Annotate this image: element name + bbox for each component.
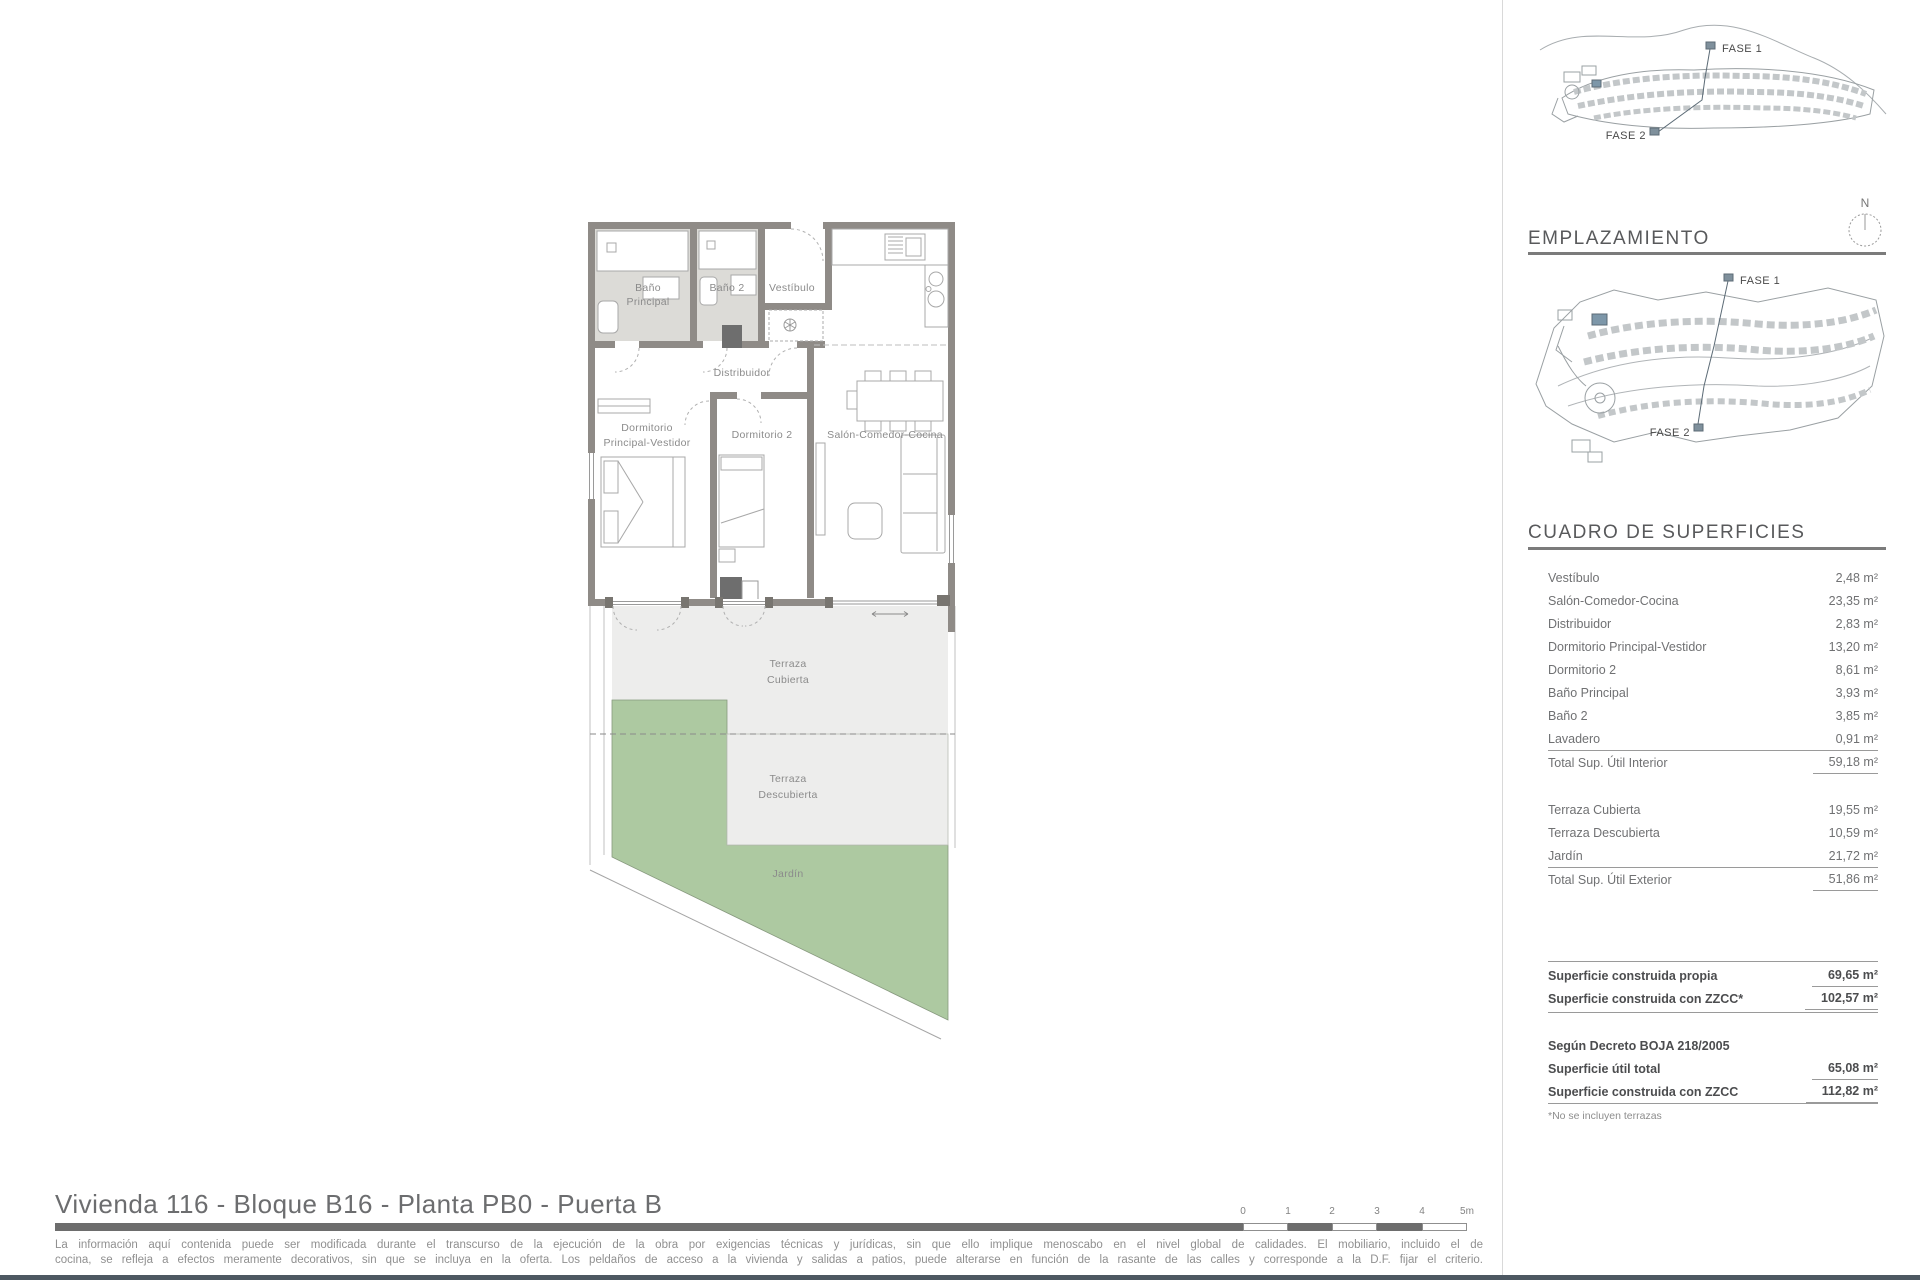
area-label-terraza-descubierta-1: Terraza xyxy=(769,773,806,785)
row-value: 51,86 m² xyxy=(1813,869,1878,891)
shaft-block xyxy=(722,325,742,348)
row-label: Superficie útil total xyxy=(1548,1059,1661,1080)
site-map-perspective: FASE 1 FASE 2 xyxy=(1534,6,1890,172)
row-label: Superficie construida con ZZCC xyxy=(1548,1082,1738,1103)
table-row: Lavadero0,91 m² xyxy=(1548,727,1878,750)
bottom-accent-band xyxy=(0,1275,1920,1280)
fase2-marker xyxy=(1694,424,1703,431)
table-row: Distribuidor2,83 m² xyxy=(1548,612,1878,635)
row-value: 10,59 m² xyxy=(1829,823,1878,844)
disclaimer: La información aquí contenida puede ser … xyxy=(55,1238,1483,1268)
emplazamiento-title: EMPLAZAMIENTO xyxy=(1528,228,1710,250)
site-map-plan: FASE 1 FASE 2 xyxy=(1528,266,1896,480)
row-value: 3,93 m² xyxy=(1836,683,1878,704)
disclaimer-line2: cocina, se refleja a efectos meramente d… xyxy=(55,1253,1483,1268)
fase1-label: FASE 1 xyxy=(1740,275,1780,287)
table-row: Terraza Cubierta19,55 m² xyxy=(1548,798,1878,821)
surfaces-rule xyxy=(1528,547,1886,550)
table-row: Jardín21,72 m² xyxy=(1548,844,1878,867)
table-total-row: Total Sup. Útil Interior59,18 m² xyxy=(1548,750,1878,774)
area-label-terraza-cubierta-2: Cubierta xyxy=(767,674,809,686)
room-label-bano-principal-2: Principal xyxy=(627,296,670,308)
row-value: 21,72 m² xyxy=(1829,846,1878,867)
room-label-dorm-principal-2: Principal-Vestidor xyxy=(603,437,690,449)
table-row: Vestíbulo2,48 m² xyxy=(1548,566,1878,589)
table-row: Salón-Comedor-Cocina23,35 m² xyxy=(1548,589,1878,612)
scale-segment xyxy=(1422,1223,1467,1231)
row-label: Vestíbulo xyxy=(1548,568,1599,589)
surfaces-interior-block: Vestíbulo2,48 m² Salón-Comedor-Cocina23,… xyxy=(1548,566,1878,774)
lavadero-unit xyxy=(742,581,758,601)
table-total-row: Total Sup. Útil Exterior51,86 m² xyxy=(1548,867,1878,891)
table-row: Superficie construida propia69,65 m² xyxy=(1548,964,1878,987)
scale-tick-label: 5m xyxy=(1454,1206,1480,1217)
scale-segment xyxy=(1243,1223,1288,1231)
area-label-terraza-cubierta-1: Terraza xyxy=(769,658,806,670)
room-label-dormitorio2: Dormitorio 2 xyxy=(732,429,793,441)
surfaces-exterior-block: Terraza Cubierta19,55 m² Terraza Descubi… xyxy=(1548,798,1878,891)
emplazamiento-rule xyxy=(1528,252,1886,255)
table-row: Terraza Descubierta10,59 m² xyxy=(1548,821,1878,844)
row-label: Superficie construida propia xyxy=(1548,966,1717,987)
row-value: 102,57 m² xyxy=(1805,988,1878,1010)
surfaces-decree-block: Según Decreto BOJA 218/2005 Superficie ú… xyxy=(1548,1034,1878,1122)
row-label: Baño 2 xyxy=(1548,706,1588,727)
surfaces-footnote: *No se incluyen terrazas xyxy=(1548,1110,1878,1122)
page-title: Vivienda 116 - Bloque B16 - Planta PB0 -… xyxy=(55,1189,662,1220)
map-left-cluster xyxy=(1552,66,1596,122)
area-label-terraza-descubierta-2: Descubierta xyxy=(758,789,817,801)
row-label: Terraza Descubierta xyxy=(1548,823,1660,844)
row-label: Baño Principal xyxy=(1548,683,1629,704)
table-row: Baño Principal3,93 m² xyxy=(1548,681,1878,704)
scale-tick-label: 3 xyxy=(1364,1206,1390,1217)
row-value: 112,82 m² xyxy=(1806,1081,1878,1103)
room-label-bano-principal-1: Baño xyxy=(635,282,661,294)
room-label-salon: Salón-Comedor-Cocina xyxy=(827,429,943,441)
row-label: Dormitorio Principal-Vestidor xyxy=(1548,637,1706,658)
fase2-marker xyxy=(1650,128,1659,135)
fase1-label: FASE 1 xyxy=(1722,43,1762,55)
row-value: 3,85 m² xyxy=(1836,706,1878,727)
highlighted-block xyxy=(1592,314,1607,325)
compass-n-label: N xyxy=(1861,196,1870,210)
row-label: Total Sup. Útil Interior xyxy=(1548,753,1668,774)
row-value: 59,18 m² xyxy=(1813,752,1878,774)
coffee-table xyxy=(848,503,882,539)
table-row: Superficie construida con ZZCC112,82 m² xyxy=(1548,1080,1878,1104)
surfaces-built-block: Superficie construida propia69,65 m² Sup… xyxy=(1548,961,1878,1013)
table-row: Superficie construida con ZZCC*102,57 m² xyxy=(1548,987,1878,1010)
room-label-dorm-principal-1: Dormitorio xyxy=(621,422,672,434)
area-label-jardin: Jardín xyxy=(773,868,804,880)
plan-sheet-page: Baño Principal Baño 2 Vestíbulo Distribu… xyxy=(0,0,1920,1280)
surfaces-title: CUADRO DE SUPERFICIES xyxy=(1528,522,1805,544)
row-value: 2,83 m² xyxy=(1836,614,1878,635)
scale-tick-label: 0 xyxy=(1230,1206,1256,1217)
fase1-marker xyxy=(1724,274,1733,281)
row-value: 8,61 m² xyxy=(1836,660,1878,681)
room-label-bano2: Baño 2 xyxy=(709,282,744,294)
scale-tick-label: 1 xyxy=(1275,1206,1301,1217)
fase2-label: FASE 2 xyxy=(1650,427,1690,439)
table-row: Dormitorio Principal-Vestidor13,20 m² xyxy=(1548,635,1878,658)
row-value: 69,65 m² xyxy=(1812,965,1878,987)
row-value: 23,35 m² xyxy=(1829,591,1878,612)
room-label-distribuidor: Distribuidor xyxy=(714,367,771,379)
bed2 xyxy=(719,455,764,562)
sofa xyxy=(901,435,945,553)
row-value: 13,20 m² xyxy=(1829,637,1878,658)
compass-icon: N xyxy=(1843,194,1887,252)
disclaimer-line1: La información aquí contenida puede ser … xyxy=(55,1238,1483,1253)
row-value: 19,55 m² xyxy=(1829,800,1878,821)
tv-bench xyxy=(816,443,825,535)
scale-tick-label: 2 xyxy=(1319,1206,1345,1217)
sidebar-divider xyxy=(1502,0,1503,1275)
table-row: Dormitorio 28,61 m² xyxy=(1548,658,1878,681)
scale-segment xyxy=(1332,1223,1377,1231)
row-value: 2,48 m² xyxy=(1836,568,1878,589)
row-label: Distribuidor xyxy=(1548,614,1611,635)
room-label-vestibulo: Vestíbulo xyxy=(769,282,815,294)
fase2-label: FASE 2 xyxy=(1606,130,1646,142)
row-label: Total Sup. Útil Exterior xyxy=(1548,870,1672,891)
row-label: Terraza Cubierta xyxy=(1548,800,1640,821)
row-label: Superficie construida con ZZCC* xyxy=(1548,989,1743,1010)
row-label: Jardín xyxy=(1548,846,1583,867)
floor-plan: Baño Principal Baño 2 Vestíbulo Distribu… xyxy=(585,215,960,1045)
row-value: 0,91 m² xyxy=(1836,729,1878,750)
table-row: Baño 23,85 m² xyxy=(1548,704,1878,727)
title-rule-scale-bar xyxy=(55,1223,1467,1231)
fase1-marker xyxy=(1706,42,1715,49)
highlighted-block xyxy=(1592,80,1601,87)
row-value: 65,08 m² xyxy=(1812,1058,1878,1080)
row-label: Lavadero xyxy=(1548,729,1600,750)
scale-tick-label: 4 xyxy=(1409,1206,1435,1217)
table-row: Superficie útil total65,08 m² xyxy=(1548,1057,1878,1080)
decree-heading: Según Decreto BOJA 218/2005 xyxy=(1548,1034,1878,1057)
row-label: Salón-Comedor-Cocina xyxy=(1548,591,1679,612)
row-label: Dormitorio 2 xyxy=(1548,660,1616,681)
